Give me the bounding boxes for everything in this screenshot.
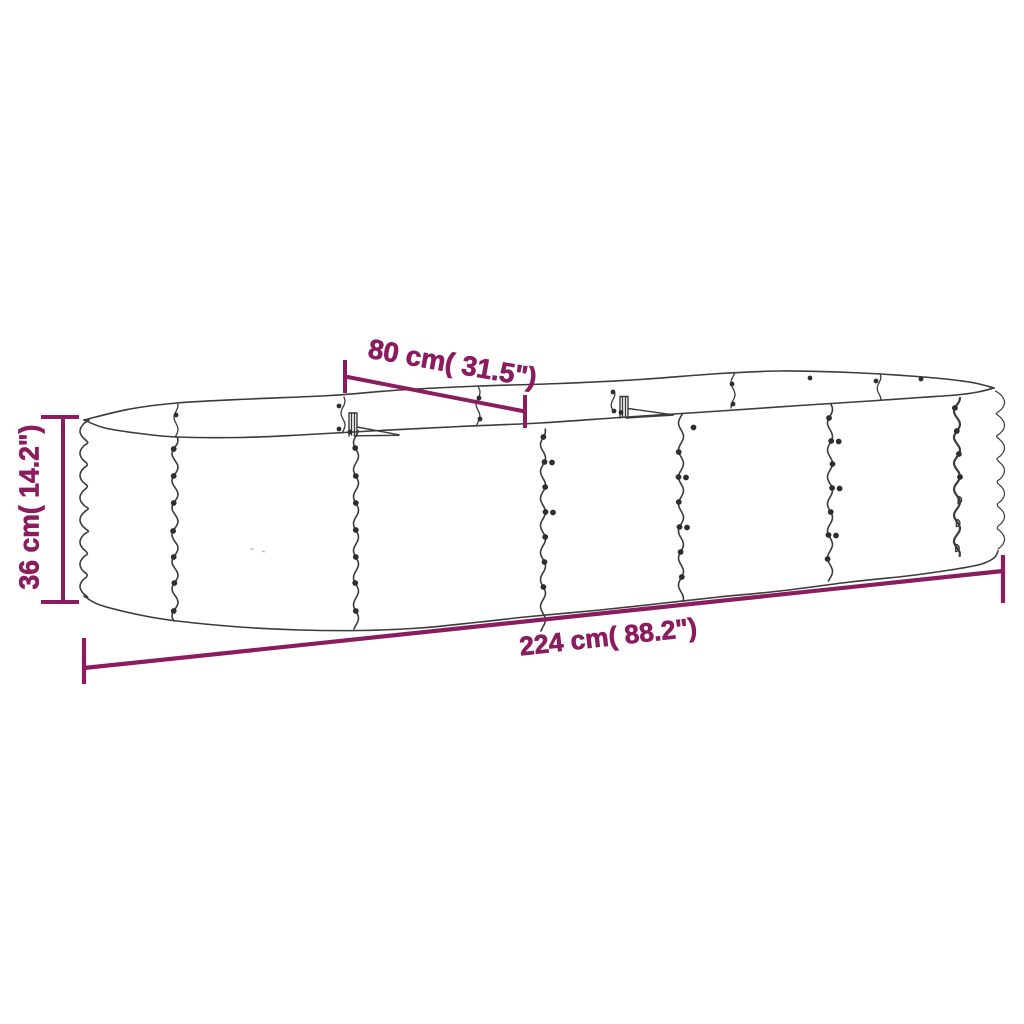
- svg-text:36 cm( 14.2"): 36 cm( 14.2"): [13, 425, 45, 590]
